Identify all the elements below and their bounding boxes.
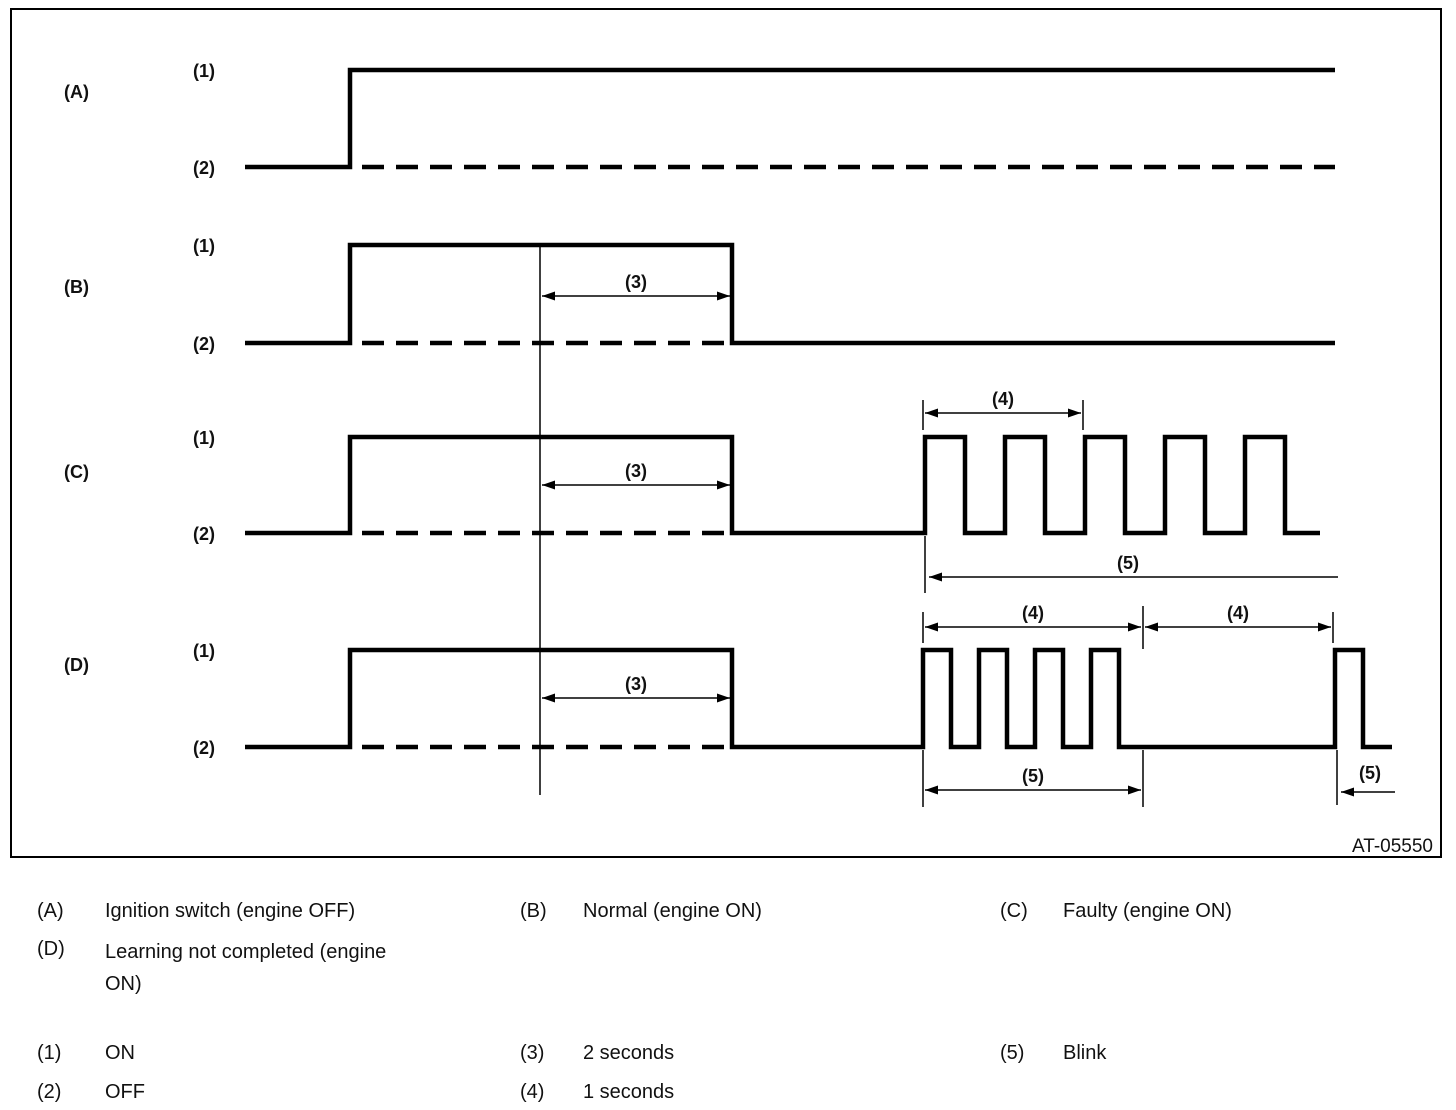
legend-key-4: (4) (520, 1079, 544, 1105)
legend-text-b: Normal (engine ON) (583, 898, 762, 924)
waveform-c-solid (245, 437, 1320, 533)
legend-key-a: (A) (37, 898, 64, 924)
dim-4-label-row-d-second: (4) (1227, 602, 1249, 624)
row-c-label: (C) (64, 461, 89, 483)
legend-key-1: (1) (37, 1040, 61, 1066)
row-d-off-label: (2) (193, 737, 215, 759)
dim-5-label-row-d-left: (5) (1022, 765, 1044, 787)
legend-text-1: ON (105, 1040, 135, 1066)
row-b-label: (B) (64, 276, 89, 298)
legend-text-3: 2 seconds (583, 1040, 674, 1066)
legend-text-4: 1 seconds (583, 1079, 674, 1105)
waveform-b-solid (245, 245, 1335, 343)
timing-diagram-page: { "diagram": { "figure_code": "AT-05550"… (0, 0, 1456, 1110)
legend-key-5: (5) (1000, 1040, 1024, 1066)
legend-key-d: (D) (37, 936, 65, 962)
legend-text-5: Blink (1063, 1040, 1106, 1066)
row-d-on-label: (1) (193, 640, 215, 662)
dim-4-label-row-c: (4) (992, 388, 1014, 410)
waveform-a-solid (245, 70, 1335, 167)
legend-key-2: (2) (37, 1079, 61, 1105)
dim-3-label-row-c: (3) (625, 460, 647, 482)
dimension-graphics (540, 245, 1395, 807)
row-d-label: (D) (64, 654, 89, 676)
figure-code: AT-05550 (1352, 836, 1433, 858)
dim-3-label-row-b: (3) (625, 271, 647, 293)
signal-traces (245, 70, 1392, 747)
row-c-off-label: (2) (193, 523, 215, 545)
dim-4-label-row-d-first: (4) (1022, 602, 1044, 624)
dim-5-label-row-c: (5) (1117, 552, 1139, 574)
row-b-on-label: (1) (193, 235, 215, 257)
row-a-label: (A) (64, 81, 89, 103)
dim-3-label-row-d: (3) (625, 673, 647, 695)
row-c-on-label: (1) (193, 427, 215, 449)
legend-key-c: (C) (1000, 898, 1028, 924)
legend-text-a: Ignition switch (engine OFF) (105, 898, 355, 924)
row-a-off-label: (2) (193, 157, 215, 179)
legend-text-c: Faulty (engine ON) (1063, 898, 1232, 924)
legend-key-3: (3) (520, 1040, 544, 1066)
row-b-off-label: (2) (193, 333, 215, 355)
legend-text-2: OFF (105, 1079, 145, 1105)
waveform-d-solid (245, 650, 1392, 747)
legend-text-d: Learning not completed (engine ON) (105, 936, 405, 1000)
dim-5-label-row-d-right: (5) (1359, 762, 1381, 784)
legend-key-b: (B) (520, 898, 547, 924)
row-a-on-label: (1) (193, 60, 215, 82)
